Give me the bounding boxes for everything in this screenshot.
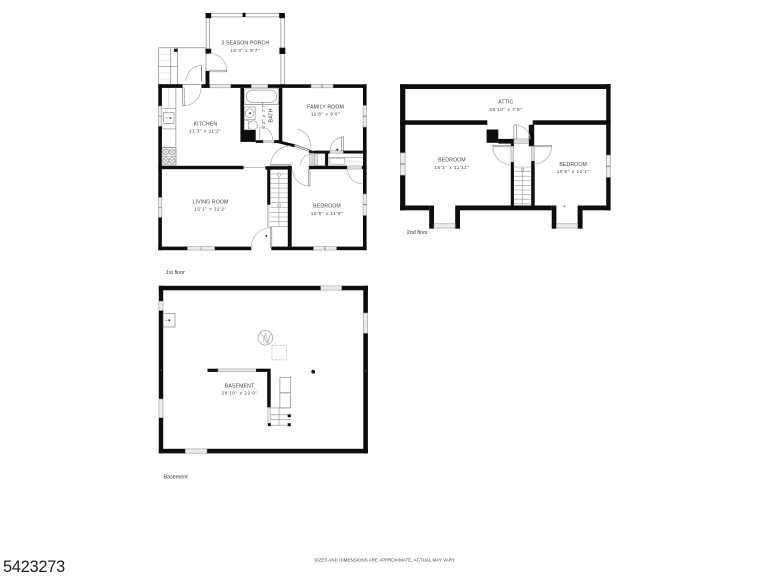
svg-text:FAMILY ROOM: FAMILY ROOM [307,105,344,111]
svg-text:11'3" x 11'2": 11'3" x 11'2" [189,128,221,133]
svg-text:SIZES AND DIMENSIONS ARE APPRO: SIZES AND DIMENSIONS ARE APPROXIMATE, AC… [314,558,455,563]
svg-text:2nd floor: 2nd floor [407,230,428,236]
svg-text:BASEMENT: BASEMENT [225,384,255,390]
svg-text:Basement: Basement [164,475,189,481]
svg-text:5423273: 5423273 [3,558,65,576]
svg-text:BATH: BATH [269,108,275,122]
svg-text:28'10" x 22'9": 28'10" x 22'9" [221,390,257,395]
svg-text:28'10" x 7'9": 28'10" x 7'9" [489,107,522,112]
svg-text:10'5" x 11'9": 10'5" x 11'9" [311,211,344,216]
svg-text:10'3" x 9'7": 10'3" x 9'7" [230,48,260,53]
svg-text:BEDROOM: BEDROOM [559,162,587,168]
svg-text:KITCHEN: KITCHEN [194,121,218,127]
svg-text:LIVING ROOM: LIVING ROOM [193,200,229,206]
svg-text:ATTIC: ATTIC [498,100,513,106]
svg-text:11'8" x 9'0": 11'8" x 9'0" [311,112,340,117]
svg-text:15'1" x 11'11": 15'1" x 11'11" [434,165,469,170]
svg-text:3 SEASON PORCH: 3 SEASON PORCH [221,41,269,47]
svg-text:5'2" x 7'7": 5'2" x 7'7" [261,102,266,129]
svg-text:15'1" x 11'2": 15'1" x 11'2" [194,207,227,212]
svg-text:BEDROOM: BEDROOM [313,203,341,209]
svg-text:1st floor: 1st floor [166,270,185,276]
svg-text:10'5" x 12'1": 10'5" x 12'1" [557,169,590,174]
svg-text:BEDROOM: BEDROOM [438,158,466,164]
